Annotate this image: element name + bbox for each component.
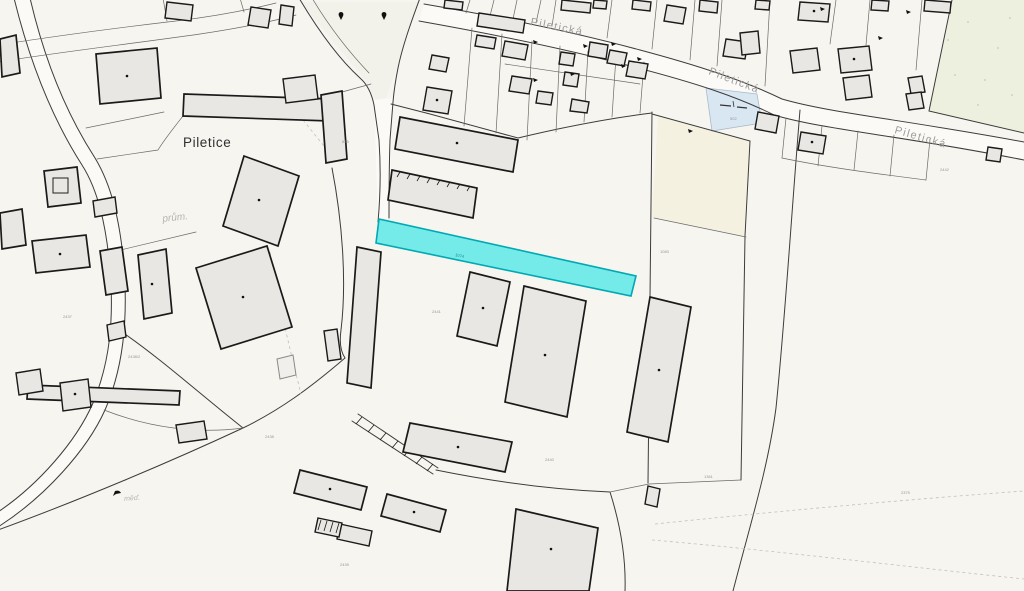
building	[321, 91, 347, 163]
building-marker	[242, 296, 245, 299]
building-marker	[813, 10, 816, 13]
building-marker	[550, 548, 553, 551]
parcel-number-label: 2438	[265, 434, 275, 439]
building-marker	[126, 75, 129, 78]
building-marker	[658, 369, 661, 372]
building-pale	[277, 355, 296, 379]
building	[0, 35, 20, 77]
building-marker	[151, 283, 154, 286]
building	[645, 486, 660, 507]
building-marker	[482, 307, 485, 310]
building-marker	[74, 393, 77, 396]
building	[16, 369, 43, 395]
building-marker	[544, 354, 547, 357]
building	[138, 249, 172, 319]
building	[283, 75, 318, 103]
building-marker	[413, 511, 416, 514]
parcel-number-label: 2379	[901, 490, 911, 495]
building-marker	[258, 199, 261, 202]
building-marker	[59, 253, 62, 256]
parcel-number-label: 2442	[940, 167, 950, 172]
building	[96, 48, 161, 104]
building-marker	[853, 58, 856, 61]
village-label: Piletice	[183, 135, 231, 150]
parcel-number-label: 2441	[432, 309, 442, 314]
landuse-label: měď.	[124, 495, 141, 503]
parcel-number-label: 1083	[660, 249, 670, 254]
building-marker	[456, 142, 459, 145]
parcel-number-label: 1361	[704, 474, 714, 479]
parcel-number-label: 2439	[340, 562, 350, 567]
building-marker	[329, 488, 332, 491]
parcel-number-label: 2438/2	[128, 354, 141, 359]
building-marker	[811, 141, 814, 144]
building-marker	[457, 446, 460, 449]
building	[93, 197, 117, 217]
parcel-number-label: 502	[730, 116, 737, 121]
parcel-number-label: 2437	[63, 314, 73, 319]
parcel-number-label: 825	[342, 139, 349, 144]
parcel-number-label: 2440	[545, 457, 555, 462]
building	[176, 421, 207, 443]
cadastral-map[interactable]: 1074 Pileti	[0, 0, 1024, 591]
building	[107, 321, 126, 341]
building-marker	[436, 99, 439, 102]
building	[0, 209, 26, 249]
building	[100, 247, 128, 295]
building	[44, 167, 81, 207]
map-canvas[interactable]: 1074 Pileti	[0, 0, 1024, 591]
